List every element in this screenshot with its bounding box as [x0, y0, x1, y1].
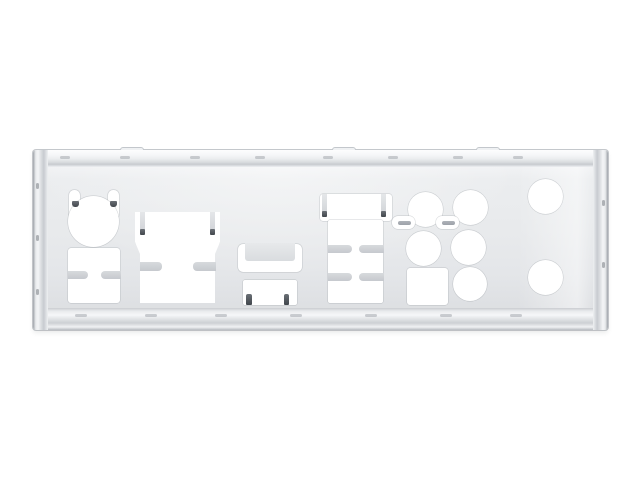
product-photo: Silver stainless-steel motherboard rear …	[0, 0, 640, 480]
plate-bottom-rim	[33, 308, 608, 330]
rim-tick	[60, 156, 70, 159]
hdmi-latch-mark-right	[284, 294, 290, 306]
flange-tick	[36, 183, 39, 189]
ps2-latch-mark-left	[72, 201, 79, 208]
rim-tick	[145, 314, 157, 317]
vga-tab-tip-right	[210, 229, 215, 235]
rim-tick	[120, 156, 130, 159]
rim-tick	[190, 156, 200, 159]
flange-tick	[36, 289, 39, 295]
rim-tick	[453, 156, 463, 159]
rim-tick	[75, 314, 87, 317]
rim-tick	[323, 156, 333, 159]
hdmi-latch-mark-left	[246, 294, 252, 306]
ps2-latch-mark-right	[110, 201, 117, 208]
io-shield-plate	[33, 150, 608, 330]
flange-tick	[602, 200, 605, 206]
plate-top-rim	[33, 150, 608, 167]
usbstack-tab-tip-right	[381, 211, 386, 217]
rim-tick	[510, 314, 522, 317]
vga-tab-tip-left	[140, 229, 145, 235]
rim-tick	[365, 314, 377, 317]
rim-tick	[290, 314, 302, 317]
plate-left-flange	[33, 150, 48, 330]
rim-tick	[215, 314, 227, 317]
rim-tick	[255, 156, 265, 159]
rim-tick	[513, 156, 523, 159]
flange-tick	[36, 235, 39, 241]
rim-tick	[388, 156, 398, 159]
usbstack-tab-tip-left	[322, 211, 327, 217]
plate-right-flange	[593, 150, 608, 330]
rim-tick	[440, 314, 452, 317]
dark-marks-layer	[33, 150, 608, 330]
flange-tick	[602, 262, 605, 268]
